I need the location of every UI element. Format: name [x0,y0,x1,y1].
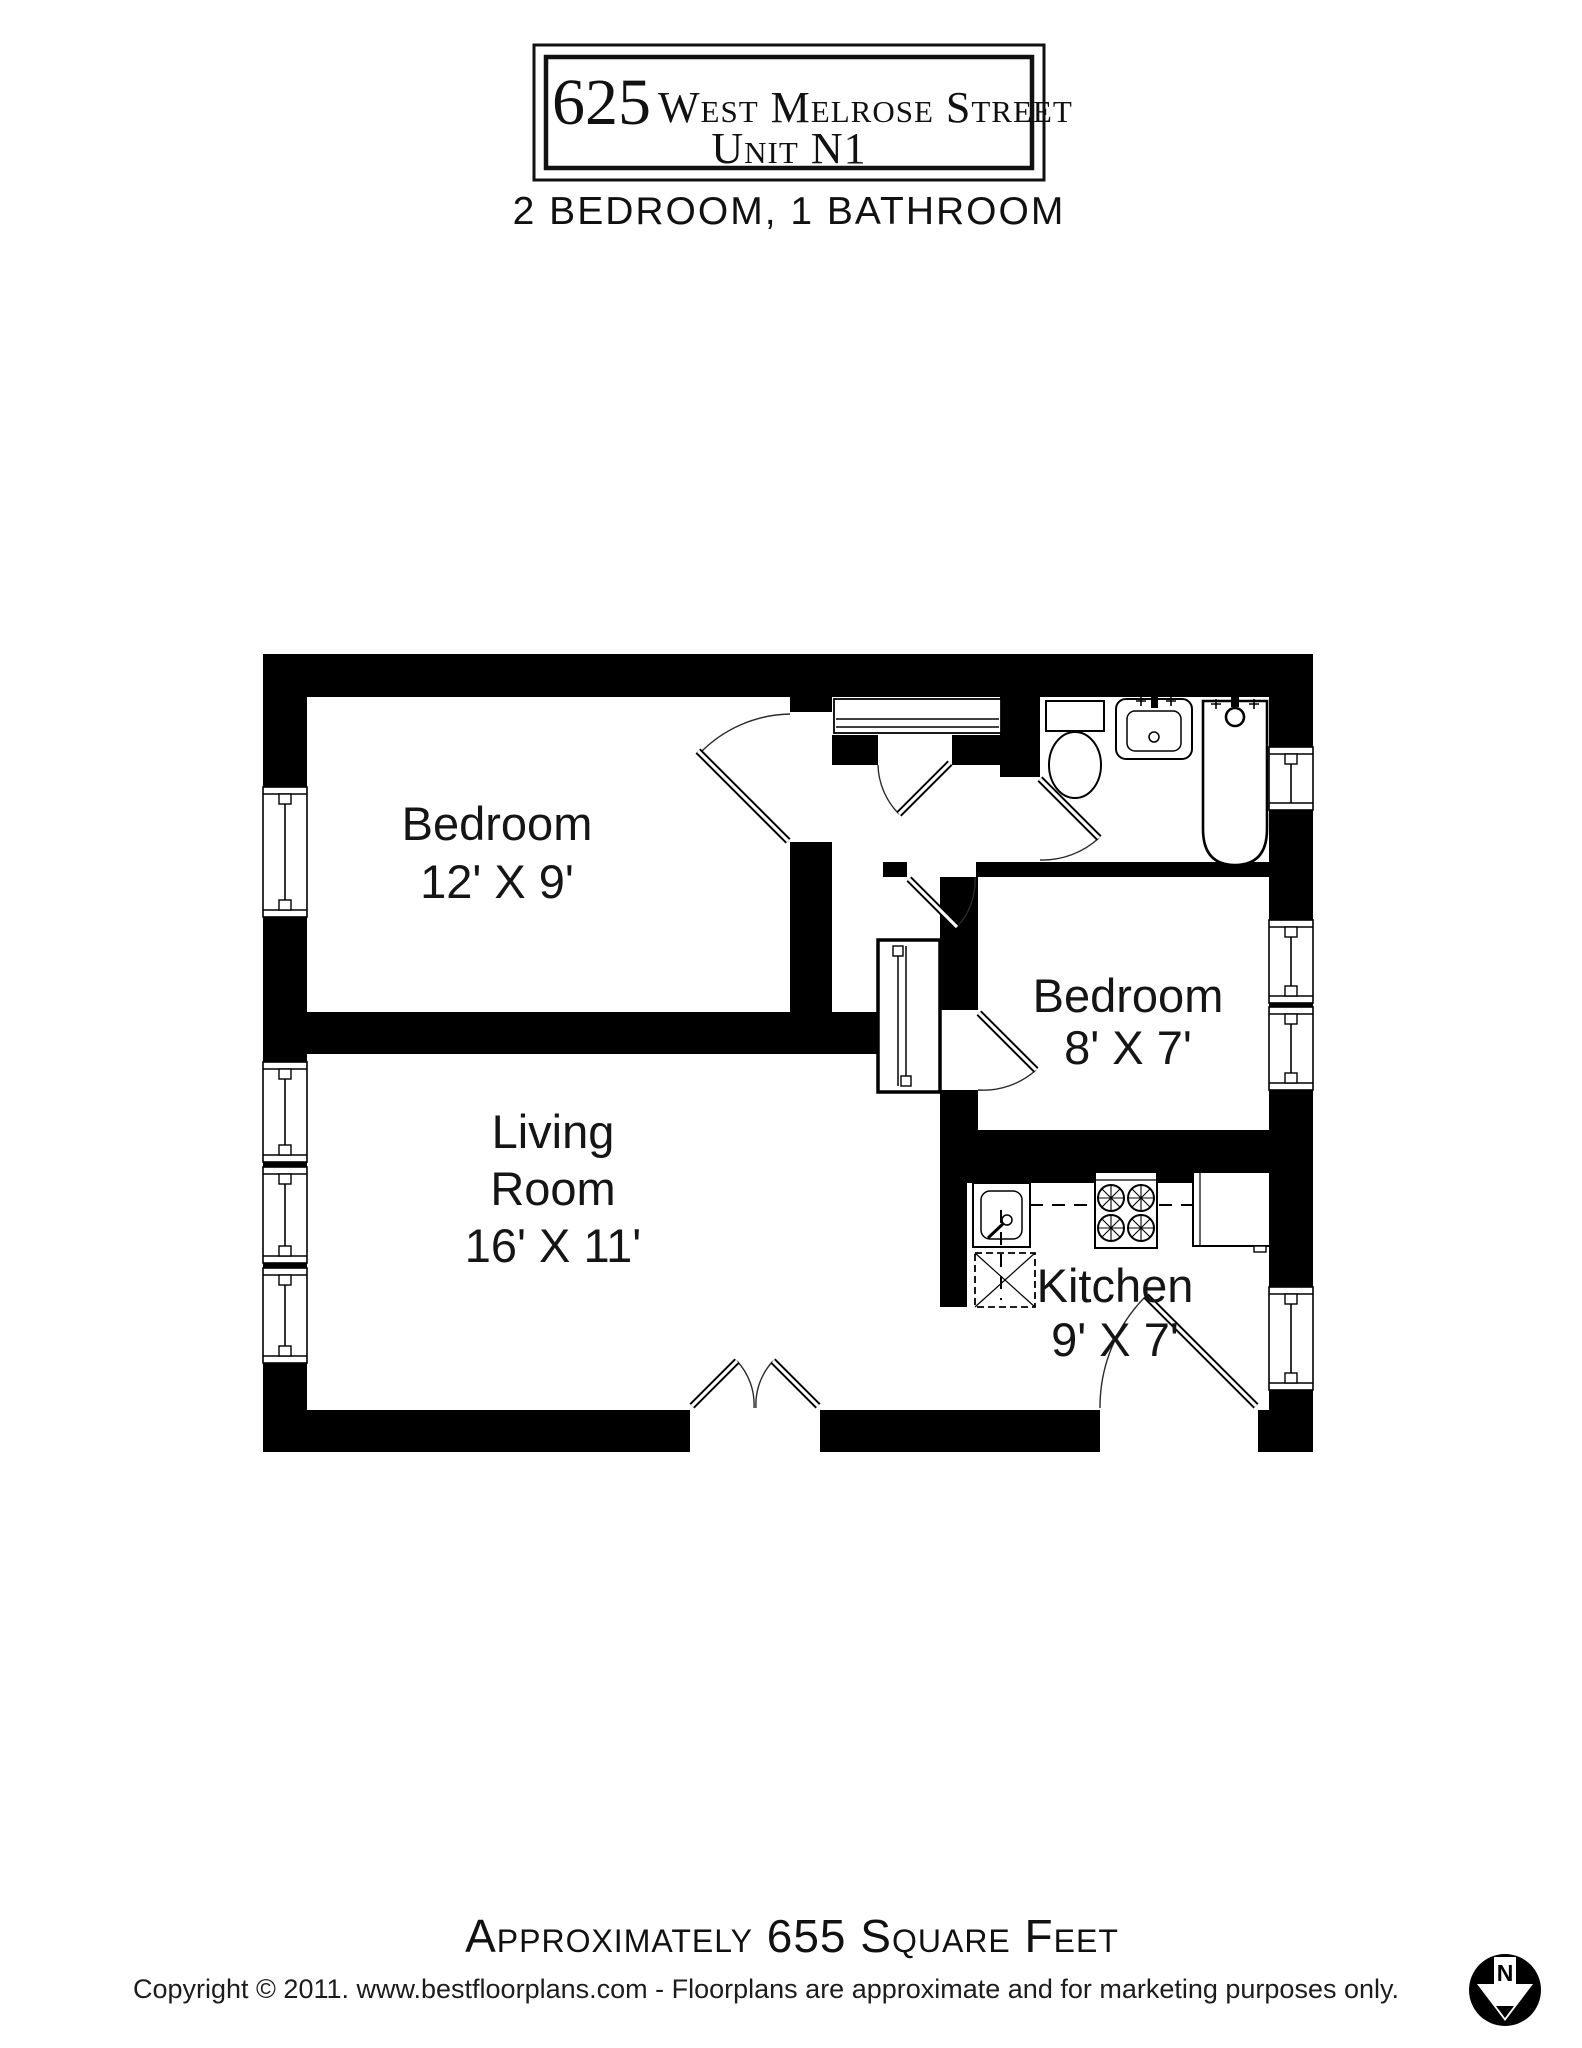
window-kitchen [1269,1287,1313,1390]
bathroom-fixtures [1046,692,1267,865]
door-hall-closet [878,763,950,814]
floorplan-drawing: 625 West Melrose Street Unit N1 2 BEDROO… [0,0,1582,2048]
floorplan-page: 625 West Melrose Street Unit N1 2 BEDROO… [0,0,1582,2048]
door-bedroom2 [978,1013,1036,1090]
toilet-icon [1046,701,1104,798]
window-living-2 [263,1167,307,1263]
title-block: 625 West Melrose Street Unit N1 [534,45,1073,180]
living-room-line1: Living [492,1105,615,1158]
area-summary: Approximately 655 Square Feet [465,1910,1119,1962]
living-room-dims: 16' X 11' [465,1219,641,1272]
refrigerator-icon [1193,1172,1270,1252]
window-bedroom2-1 [1269,920,1313,1003]
subtitle: 2 BEDROOM, 1 BATHROOM [513,190,1066,233]
bedroom2-closet [878,940,940,1092]
compass-north-label: N [1497,1960,1514,1986]
window-living-3 [263,1268,307,1363]
door-living-left [692,1361,754,1408]
bedroom2-name: Bedroom [1033,969,1224,1022]
bathtub-icon [1203,695,1267,865]
window-bedroom2-2 [1269,1007,1313,1090]
compass-icon: N [1469,1954,1541,2026]
door-living-right [756,1361,818,1408]
window-bathroom [1269,747,1313,810]
unit-label: Unit N1 [711,124,866,173]
bedroom2-dims: 8' X 7' [1064,1021,1192,1074]
copyright-line: Copyright © 2011. www.bestfloorplans.com… [133,1974,1399,2004]
door-bedroom1 [698,714,790,841]
bedroom1-name: Bedroom [402,797,593,850]
bathroom-sink-icon [1116,692,1192,759]
address-number: 625 [552,66,651,139]
dishwasher-icon [975,1253,1035,1307]
stove-icon [1095,1172,1157,1248]
living-room-line2: Room [490,1162,615,1215]
bedroom1-dims: 12' X 9' [420,855,574,908]
window-living-1 [263,1062,307,1162]
kitchen-dims: 9' X 7' [1051,1313,1179,1366]
window-bedroom1 [263,787,307,917]
kitchen-name: Kitchen [1037,1259,1194,1312]
hall-closet [834,699,1001,733]
